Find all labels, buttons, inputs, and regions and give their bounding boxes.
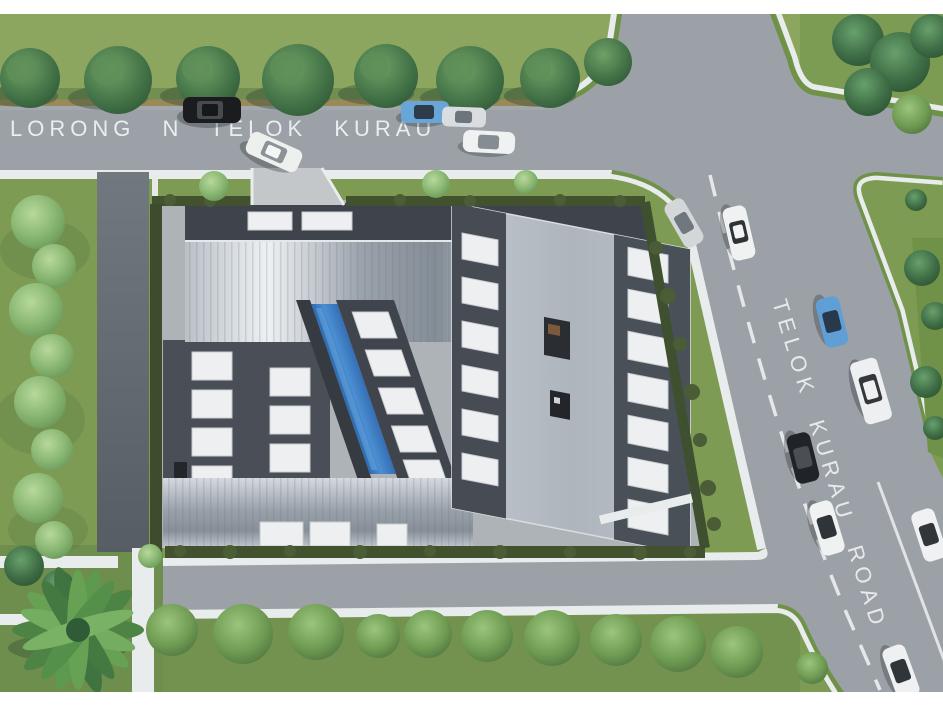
tree	[14, 376, 66, 428]
tree	[0, 48, 60, 108]
tree	[584, 38, 632, 86]
car-black-west-road	[177, 97, 241, 128]
rooftop-unit	[544, 317, 570, 360]
skylight	[260, 522, 303, 546]
skylight	[377, 524, 407, 546]
tree	[30, 334, 74, 378]
car-blue-west-road	[396, 101, 449, 127]
tree	[31, 429, 73, 471]
top-margin	[0, 0, 943, 14]
skylight	[310, 522, 350, 546]
bottom-margin	[0, 692, 943, 717]
tree	[13, 473, 63, 523]
scene-svg: LORONG N TELOK KURAU TELOK KURAU ROAD	[0, 0, 943, 717]
building-lot	[150, 194, 721, 560]
car-silver-west-road	[442, 106, 487, 128]
tree	[35, 521, 73, 559]
tree	[9, 283, 63, 337]
skylight	[248, 212, 292, 230]
tree	[11, 195, 65, 249]
skylight	[302, 212, 352, 230]
tree	[32, 244, 76, 288]
barrel-roof-south	[163, 478, 473, 548]
site-rendering: LORONG N TELOK KURAU TELOK KURAU ROAD	[0, 0, 943, 717]
rooftop-unit	[550, 390, 570, 420]
